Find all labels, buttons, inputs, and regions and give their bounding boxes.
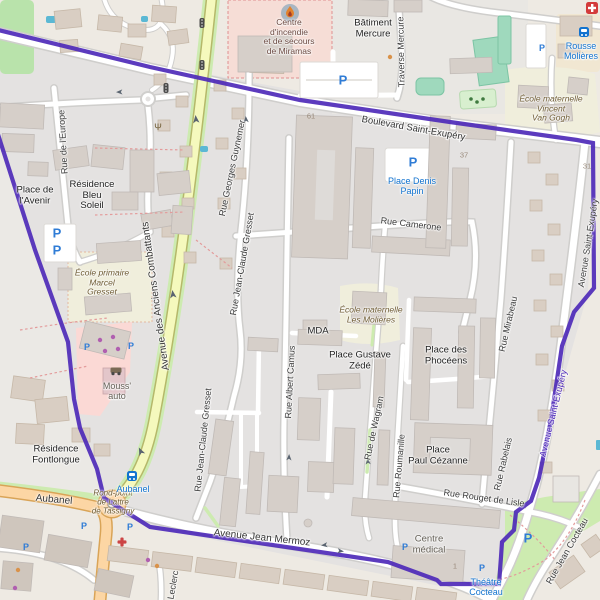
pitch-northeast <box>498 16 511 64</box>
transit-label-rousse-molieres: RousseMolières <box>564 41 598 61</box>
place-label-centre-medical: Centremédical <box>413 534 446 555</box>
traffic-signal-icon <box>200 60 205 70</box>
playground <box>459 89 496 109</box>
parking-icon: P <box>23 542 29 552</box>
place-label-residence-bleu-soleil: RésidenceBleuSoleil <box>70 180 115 212</box>
parking-icon: P <box>53 226 62 241</box>
parking-icon: P <box>524 531 533 546</box>
parking-icon: P <box>339 73 348 88</box>
parking-icon: P <box>409 155 418 170</box>
swimming-pool <box>200 146 208 152</box>
amenity-label-ecole-maternelle-van-gogh: École maternelleVincentVan Gogh <box>519 95 582 124</box>
parking-icon: P <box>539 43 545 53</box>
parking-icon: P <box>127 522 133 532</box>
fountain-icon: Ψ <box>154 122 162 132</box>
house-number: 37 <box>460 151 468 160</box>
house-number: 1 <box>453 562 457 571</box>
place-label-residence-fontlongue: RésidenceFontlongue <box>32 444 80 465</box>
house-number: 61 <box>307 112 315 121</box>
place-label-place-de-lavenir: Place del'Avenir <box>17 185 54 206</box>
amenity-label-ecole-primaire-gresset: École primaireMarcelGresset <box>75 269 129 298</box>
parking-icon: P <box>53 243 62 258</box>
parking-icon: P <box>81 521 87 531</box>
amenity-label-centre-incendie: Centred'incendie et de secoursde Miramas <box>263 18 314 56</box>
place-label-mda: MDA <box>307 327 328 338</box>
sports-pitch-small <box>416 78 444 95</box>
parking-icon: P <box>128 341 134 351</box>
house-number: 31 <box>583 162 591 171</box>
amenity-label-ecole-maternelle-molieres: École maternelleLes Molières <box>339 305 402 324</box>
traffic-signal-icon <box>200 18 205 28</box>
veterinary-icon <box>118 538 127 547</box>
place-label-place-paul-cezanne: PlacePaul Cézanne <box>408 445 468 466</box>
swimming-pool <box>141 16 148 22</box>
parking-icon: P <box>84 342 90 352</box>
place-label-mouss-auto: Mouss'auto <box>103 381 131 401</box>
hospital-icon <box>586 2 598 14</box>
place-label-place-des-phoceens: Place desPhocéens <box>425 345 467 366</box>
map-canvas[interactable]: Boulevard Saint-Exupéry Avenue Saint-Exu… <box>0 0 600 600</box>
street-label-traverse-mercure: Traverse Mercure <box>395 17 406 88</box>
transit-label-aubanel: Aubanel <box>116 484 149 494</box>
place-label-batiment-mercure: BâtimentMercure <box>354 18 392 39</box>
parking-icon: P <box>402 542 408 552</box>
bus-stop-icon <box>579 27 589 37</box>
traffic-signal-icon <box>164 83 169 93</box>
transit-label-theatre-cocteau: ThéâtreCocteau <box>469 577 503 597</box>
bus-stop-icon <box>127 471 137 481</box>
parking-icon: P <box>479 563 485 573</box>
place-label-place-gustave-zede: Place GustaveZédé <box>329 350 391 371</box>
pool-east <box>596 440 600 450</box>
transit-label-place-denis-papin: Place DenisPapin <box>388 176 436 196</box>
